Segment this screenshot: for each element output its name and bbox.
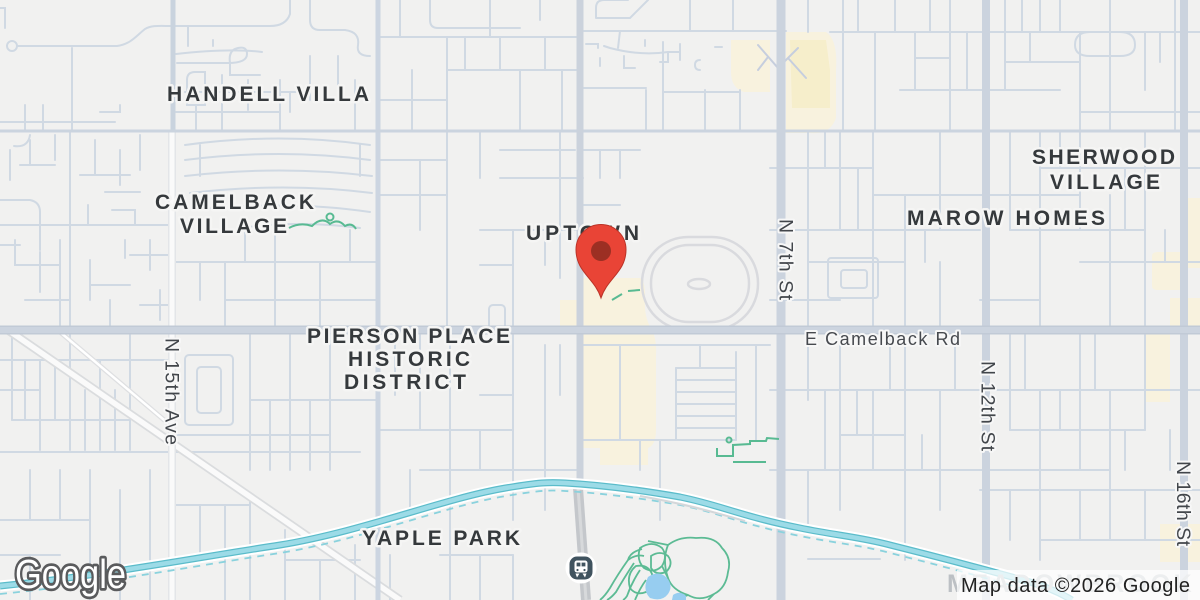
svg-text:PIERSON PLACE: PIERSON PLACE [307, 325, 510, 348]
svg-text:CAMELBACK: CAMELBACK [155, 191, 314, 214]
svg-text:YAPLE PARK: YAPLE PARK [362, 527, 520, 550]
svg-text:HANDELL VILLA: HANDELL VILLA [167, 83, 369, 106]
svg-text:N 12th St: N 12th St [977, 361, 999, 452]
svg-text:SHERWOOD: SHERWOOD [1032, 146, 1175, 169]
svg-text:E Camelback Rd: E Camelback Rd [805, 329, 960, 349]
svg-text:MAROW HOMES: MAROW HOMES [907, 207, 1105, 230]
svg-text:N 16th St: N 16th St [1172, 461, 1194, 547]
svg-text:Map data ©2026 Google: Map data ©2026 Google [961, 575, 1190, 597]
svg-text:Google: Google [15, 551, 126, 597]
svg-text:N 15th Ave: N 15th Ave [161, 338, 183, 445]
